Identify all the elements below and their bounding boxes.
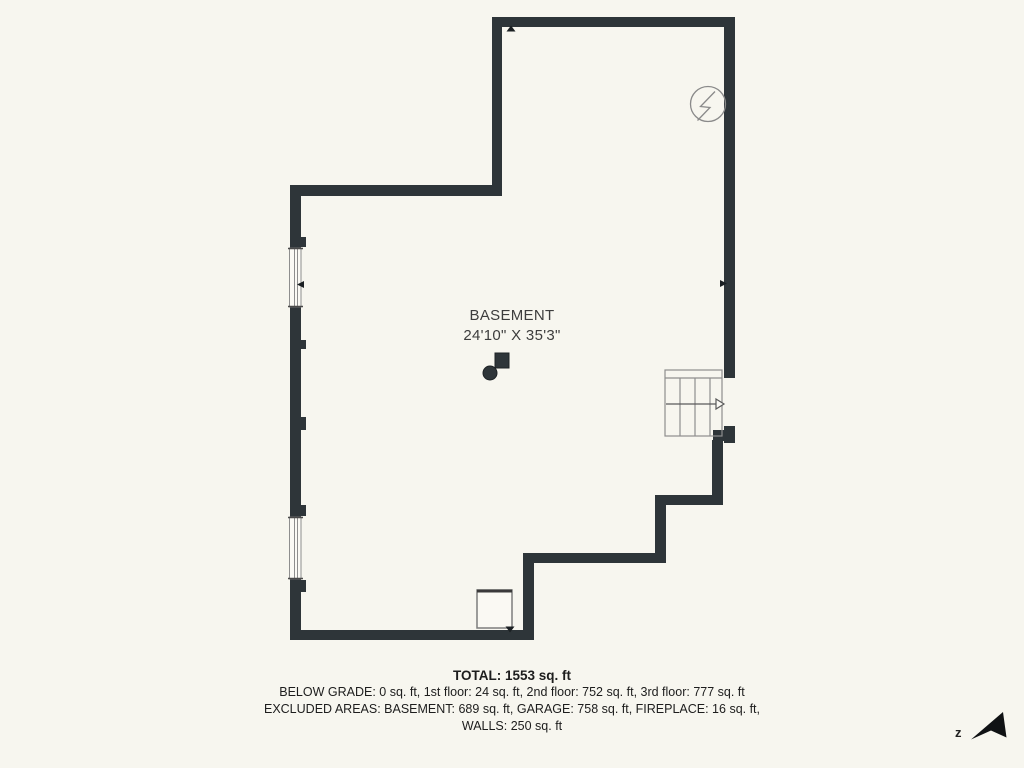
window-symbol-1 (288, 248, 303, 307)
wall-pier (301, 340, 306, 349)
wall-pier (301, 505, 306, 516)
summary-total: TOTAL: 1553 sq. ft (212, 667, 812, 684)
wall-left-upper-section (492, 17, 502, 196)
wall-right-upper (724, 17, 735, 378)
floorplan-page: BASEMENT 24'10" X 35'3" TOTAL: 1553 sq. … (0, 0, 1024, 768)
compass-label: z (955, 725, 962, 740)
wall-left-b (290, 307, 301, 517)
wall-step-v1 (655, 495, 666, 563)
area-summary: TOTAL: 1553 sq. ft BELOW GRADE: 0 sq. ft… (212, 667, 812, 735)
wall-left-c (290, 579, 301, 640)
wall-pier (301, 580, 306, 592)
floorplan-drawing (0, 0, 1024, 768)
column-and-water-heater-icon (483, 353, 509, 380)
room-name: BASEMENT (392, 306, 632, 326)
summary-floors: BELOW GRADE: 0 sq. ft, 1st floor: 24 sq.… (212, 684, 812, 701)
wall-pier (301, 237, 306, 247)
north-arrow-icon (971, 712, 1007, 740)
room-label: BASEMENT 24'10" X 35'3" (392, 306, 632, 346)
wall-step-v2 (523, 553, 534, 640)
wall-bottom (290, 630, 534, 640)
wall-landing-stub2 (724, 426, 735, 443)
electrical-symbol-icon (691, 87, 726, 122)
wall-pier (301, 417, 306, 430)
wall-top-lower-section (290, 185, 502, 196)
window-symbol-2 (288, 517, 303, 579)
wall-top (492, 17, 735, 27)
summary-walls: WALLS: 250 sq. ft (212, 718, 812, 735)
staircase (665, 370, 724, 436)
room-dimensions: 24'10" X 35'3" (392, 326, 632, 346)
wall-step-h2 (523, 553, 666, 563)
summary-excluded: EXCLUDED AREAS: BASEMENT: 689 sq. ft, GA… (212, 701, 812, 718)
furnace-symbol (477, 590, 512, 628)
